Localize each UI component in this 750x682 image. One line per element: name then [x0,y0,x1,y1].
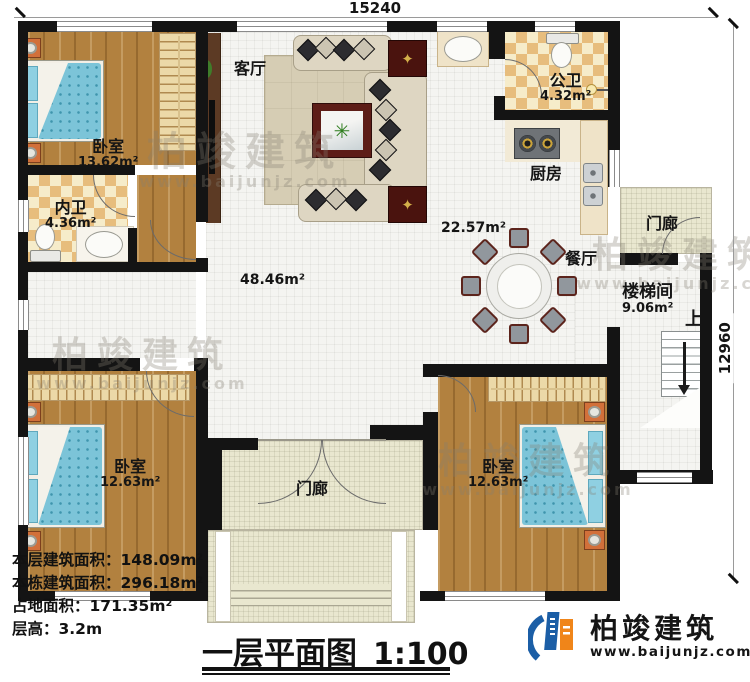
room-label-stairwell: 楼梯间 [622,283,673,302]
wall [205,438,258,450]
nightstand [584,530,605,550]
dimension-line-top [14,17,716,18]
stove-burner [539,135,556,152]
wall [423,364,438,375]
title-underline-thin [202,673,450,675]
window [18,200,29,232]
toilet-tank [30,250,61,262]
floor-corridor [28,272,196,358]
room-area-bath-public: 4.32m² [540,90,591,104]
dining-chair [557,276,577,296]
dimension-right: 12960 [717,313,734,383]
wash-basin [85,231,123,258]
info-block: 本层建筑面积：148.09m² 本栋建筑面积：296.18m² 占地面积：171… [12,549,203,641]
steps-side-right [391,531,407,622]
room-area-bath-inner: 4.36m² [45,217,96,231]
room-label-dining: 餐厅 [565,250,597,268]
dimension-top: 15240 [320,0,430,17]
entry-steps [207,530,415,623]
wall [152,21,237,32]
room-area-bedroom-br: 12.63m² [468,476,528,490]
wardrobe-rail [178,36,180,147]
coffee-table-top: ✳ [321,111,363,150]
room-area-bedroom-bl: 12.63m² [100,476,160,490]
wall [18,358,140,371]
window [535,21,575,32]
coffee-table: ✳ [312,103,372,158]
steps-side-left [215,531,231,622]
room-label-porch-bottom: 门廊 [296,480,328,498]
brand-logo-icon [528,606,582,668]
window [445,591,545,601]
wall [370,425,423,440]
window [609,150,620,187]
kitchen-sink [583,186,603,206]
room-label-porch-right: 门廊 [646,215,678,233]
wardrobe [488,374,606,402]
wall [607,327,620,601]
room-area-stairwell: 9.06m² [622,302,673,316]
wall [700,253,712,484]
side-table-lamp: ✦ [388,40,427,77]
floor-plan-sheet: ✳ ✦ ✦ [0,0,750,682]
wardrobe-rail [491,388,602,390]
title-underline [202,667,450,671]
toilet-bowl [551,42,572,68]
room-area-dining: 22.57m² [441,221,506,236]
stairs-up-label: 上 [685,310,703,330]
window [18,437,29,525]
brand-site: www.baijunjz.com [590,644,750,660]
wall [489,31,505,59]
room-label-bedroom-bl: 卧室 [100,458,160,476]
side-table-lamp: ✦ [388,186,427,223]
window [57,21,152,32]
dining-table [486,253,552,319]
wall [423,412,438,530]
window [237,21,387,32]
stove-burner [519,135,536,152]
dimension-line-right [733,24,734,580]
wardrobe [159,33,196,151]
window [18,300,29,330]
kitchen-basin [444,36,482,62]
stairs-arrow [683,342,686,386]
info-total-area: 本栋建筑面积：296.18m² [12,572,203,595]
room-label-living: 客厅 [234,60,266,78]
brand-name: 柏竣建筑 [590,614,750,645]
room-area-hall: 48.46m² [240,273,305,288]
room-area-bedroom-tl: 13.62m² [78,156,138,170]
room-label-bath-inner: 内卫 [45,199,96,217]
wall [205,440,222,530]
room-label-kitchen: 厨房 [530,165,562,183]
info-land-area: 占地面积：171.35m² [12,595,203,618]
info-floor-height: 层高：3.2m [12,618,203,641]
steps-treads [231,584,391,606]
bed [20,60,104,142]
bed-pillow [588,479,603,523]
kitchen-sink [583,163,603,183]
wall [128,228,137,262]
wall [18,262,208,272]
wall [196,21,208,222]
wall [387,21,437,32]
wall [620,253,678,265]
room-label-bath-public: 公卫 [540,72,591,90]
brand-logo: 柏竣建筑 www.baijunjz.com [528,606,750,668]
nightstand [584,402,605,422]
lamp-cord [597,89,608,91]
bed [519,424,606,528]
bed [20,424,105,528]
stairs-arrow-head [678,385,690,395]
wall [423,364,620,377]
info-floor-area: 本层建筑面积：148.09m² [12,549,203,572]
stove [514,128,560,159]
window [437,21,487,32]
dining-chair [509,324,529,344]
room-label-bedroom-tl: 卧室 [78,138,138,156]
tv-screen [209,100,215,174]
dining-chair [509,228,529,248]
dining-table-inner [497,264,542,309]
window [637,472,692,483]
dining-chair [461,276,481,296]
wall [25,21,57,32]
wall [497,110,608,120]
room-label-bedroom-br: 卧室 [468,458,528,476]
bed-pillow [588,431,603,475]
